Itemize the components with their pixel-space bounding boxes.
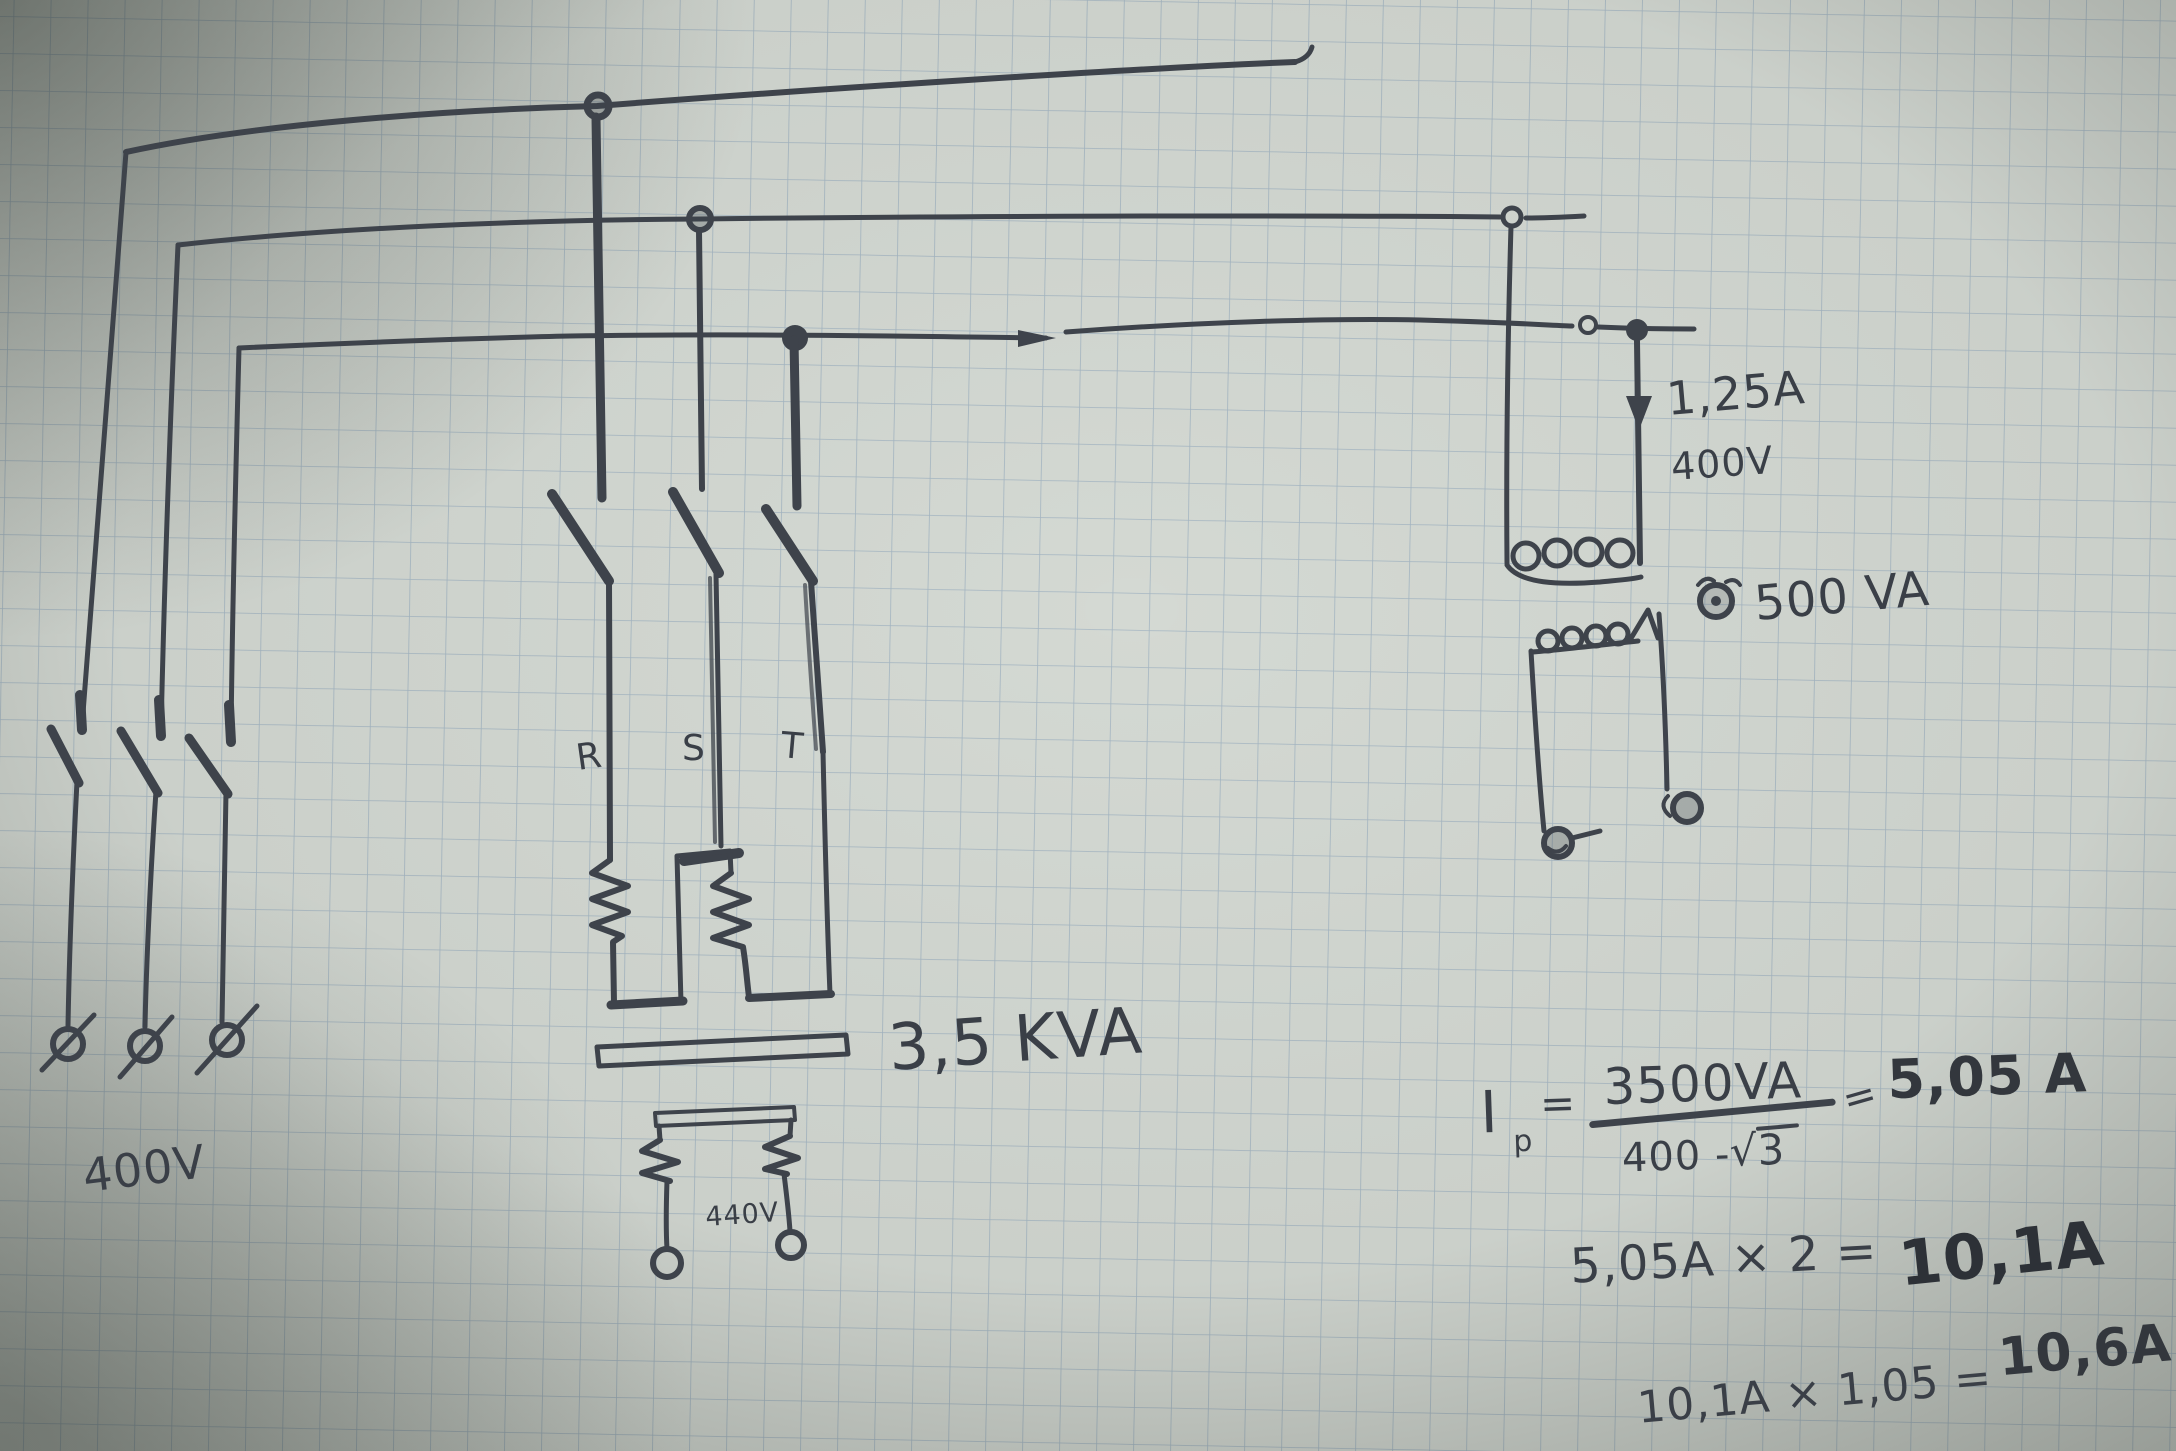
calc1-result: 5,05 A xyxy=(1886,1041,2088,1111)
calc1-denominator: 400 - xyxy=(1621,1132,1731,1182)
ct-voltage-label: 400V xyxy=(1670,438,1775,489)
ct-right-drop-wire xyxy=(1637,341,1640,563)
phase-r-drop-wire xyxy=(596,117,602,498)
phase-t-drop-wire xyxy=(794,340,797,506)
calc1-equals: = xyxy=(1539,1078,1577,1128)
phase-s-label: S xyxy=(682,728,706,769)
photo-of-hand-drawn-circuit: 400V R S T 3,5 KVA xyxy=(0,0,2176,1451)
calc1-radicand: √3 xyxy=(1729,1125,1786,1176)
circuit-sketch: 400V R S T 3,5 KVA xyxy=(0,0,2176,1451)
calc1-symbol: I xyxy=(1479,1078,1499,1147)
calc1-subscript: p xyxy=(1513,1124,1534,1160)
phase-s-drop-wire xyxy=(699,230,702,489)
secondary-voltage-label: 440V xyxy=(704,1197,780,1233)
phase-t-label: T xyxy=(778,725,805,768)
junction-node-ct-right xyxy=(1626,319,1648,341)
junction-node-s xyxy=(689,208,711,230)
